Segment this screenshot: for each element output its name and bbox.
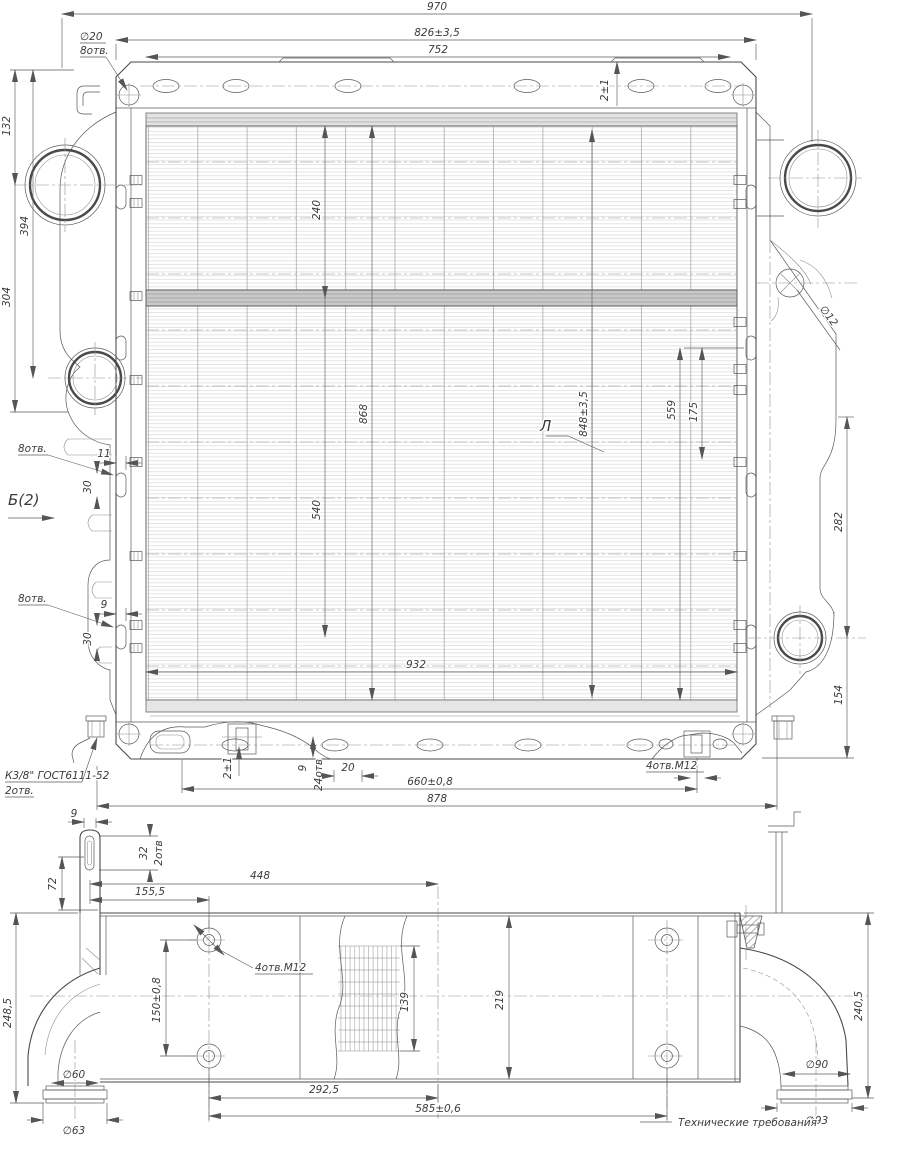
left-frame-slots bbox=[116, 185, 126, 649]
bottom-rail-slots bbox=[150, 739, 740, 751]
dim-d90: ∅90 bbox=[806, 1059, 829, 1071]
left-elbow-pipe bbox=[28, 968, 107, 1122]
dim-878: 878 bbox=[427, 793, 447, 805]
inlet-pipe-upper-right bbox=[757, 130, 862, 228]
dim-132: 132 bbox=[1, 116, 13, 136]
dim-32: 32 bbox=[138, 846, 150, 860]
top-rail-slots bbox=[140, 80, 740, 93]
note-4otv-m12-plan: 4отв.М12 bbox=[646, 760, 697, 772]
bottom-header-tank bbox=[146, 700, 737, 712]
drain-fitting-right bbox=[772, 716, 794, 739]
note-24otv: 24отв bbox=[313, 759, 325, 791]
dim-826: 826±3,5 bbox=[414, 27, 460, 39]
dim-2pm1-top: 2±1 bbox=[599, 79, 611, 101]
dim-848: 848±3,5 bbox=[578, 391, 590, 437]
dim-72: 72 bbox=[47, 877, 59, 891]
side-body bbox=[100, 913, 740, 1082]
drain-fitting-left bbox=[86, 716, 106, 737]
core bbox=[146, 113, 740, 716]
dim-11: 11 bbox=[97, 448, 110, 460]
dim-d63: ∅63 bbox=[63, 1125, 86, 1137]
dim-30-lower: 30 bbox=[82, 632, 94, 646]
pipe-lower-right bbox=[748, 605, 866, 674]
dim-d60: ∅60 bbox=[63, 1069, 86, 1081]
dim-970: 970 bbox=[427, 1, 447, 13]
note-tech-requirements: Технические требования bbox=[678, 1117, 817, 1129]
side-view-dimensions: 9 32 2отв 72 448 155,5 4отв.М12 150±0,8 … bbox=[2, 808, 874, 1137]
note-8otv-lower: 8отв. bbox=[18, 593, 47, 605]
dim-559: 559 bbox=[666, 400, 678, 420]
note-thread: К3/8" ГОСТ6111-52 bbox=[5, 770, 110, 782]
section-label: Л bbox=[539, 417, 551, 435]
dim-585: 585±0,6 bbox=[415, 1103, 461, 1115]
dim-9-bottom: 9 bbox=[297, 764, 309, 771]
dim-154: 154 bbox=[833, 685, 845, 705]
dim-292-5: 292,5 bbox=[309, 1084, 339, 1096]
dim-20: 20 bbox=[341, 762, 355, 774]
left-frame-bolts bbox=[130, 175, 142, 653]
dim-9-side: 9 bbox=[101, 599, 108, 611]
left-tank bbox=[60, 112, 116, 715]
dim-30-upper: 30 bbox=[82, 480, 94, 494]
dim-150: 150±0,8 bbox=[151, 977, 163, 1023]
note-d20: ∅20 bbox=[80, 31, 103, 43]
dim-2pm1-bottom: 2±1 bbox=[222, 757, 234, 779]
dim-394: 394 bbox=[19, 216, 31, 236]
dim-139: 139 bbox=[399, 992, 411, 1012]
gusset-hatched bbox=[740, 916, 762, 948]
fitting-d12 bbox=[756, 260, 858, 321]
note-2otv: 2отв bbox=[153, 840, 165, 865]
hook-bracket-top-left bbox=[77, 86, 100, 114]
dim-d12: ∅12 bbox=[817, 304, 840, 329]
radiator-drawing: 970 826±3,5 752 ∅20 8отв. 2±1 132 304 39… bbox=[0, 0, 900, 1152]
pipe-lower-left bbox=[48, 342, 142, 415]
hook-bracket-bottom-left bbox=[72, 738, 90, 763]
core-tube-columns bbox=[146, 126, 737, 700]
dim-155-5: 155,5 bbox=[135, 886, 165, 898]
dim-240-5: 240,5 bbox=[853, 991, 865, 1021]
dim-448: 448 bbox=[250, 870, 270, 882]
dim-248-5: 248,5 bbox=[2, 998, 14, 1028]
dim-282: 282 bbox=[833, 512, 845, 532]
dim-9-bracket: 9 bbox=[71, 808, 78, 820]
top-rail-tabs bbox=[279, 58, 704, 62]
dim-304: 304 bbox=[1, 287, 13, 307]
note-4otv-m12-side: 4отв.М12 bbox=[255, 962, 306, 974]
dim-868: 868 bbox=[358, 404, 370, 424]
right-bracket bbox=[727, 812, 801, 960]
note-d20-qty: 8отв. bbox=[80, 45, 109, 57]
broken-out-section bbox=[334, 916, 407, 1079]
right-elbow-pipe bbox=[740, 948, 852, 1122]
note-8otv-upper: 8отв. bbox=[18, 443, 47, 455]
view-label-b2: Б(2) bbox=[8, 491, 40, 509]
dim-240: 240 bbox=[311, 200, 323, 220]
top-header-tank bbox=[146, 113, 737, 126]
radiator-drawing-page: 970 826±3,5 752 ∅20 8отв. 2±1 132 304 39… bbox=[0, 0, 900, 1152]
dim-540: 540 bbox=[311, 500, 323, 520]
right-frame-slots bbox=[746, 185, 756, 649]
dim-219: 219 bbox=[494, 990, 506, 1010]
dim-175: 175 bbox=[688, 402, 700, 422]
dim-660: 660±0,8 bbox=[407, 776, 453, 788]
dim-752: 752 bbox=[428, 44, 448, 56]
top-view bbox=[14, 58, 866, 763]
dim-932: 932 bbox=[406, 659, 426, 671]
mounting-foot-left bbox=[140, 722, 331, 759]
note-thread-qty: 2отв. bbox=[5, 785, 34, 797]
